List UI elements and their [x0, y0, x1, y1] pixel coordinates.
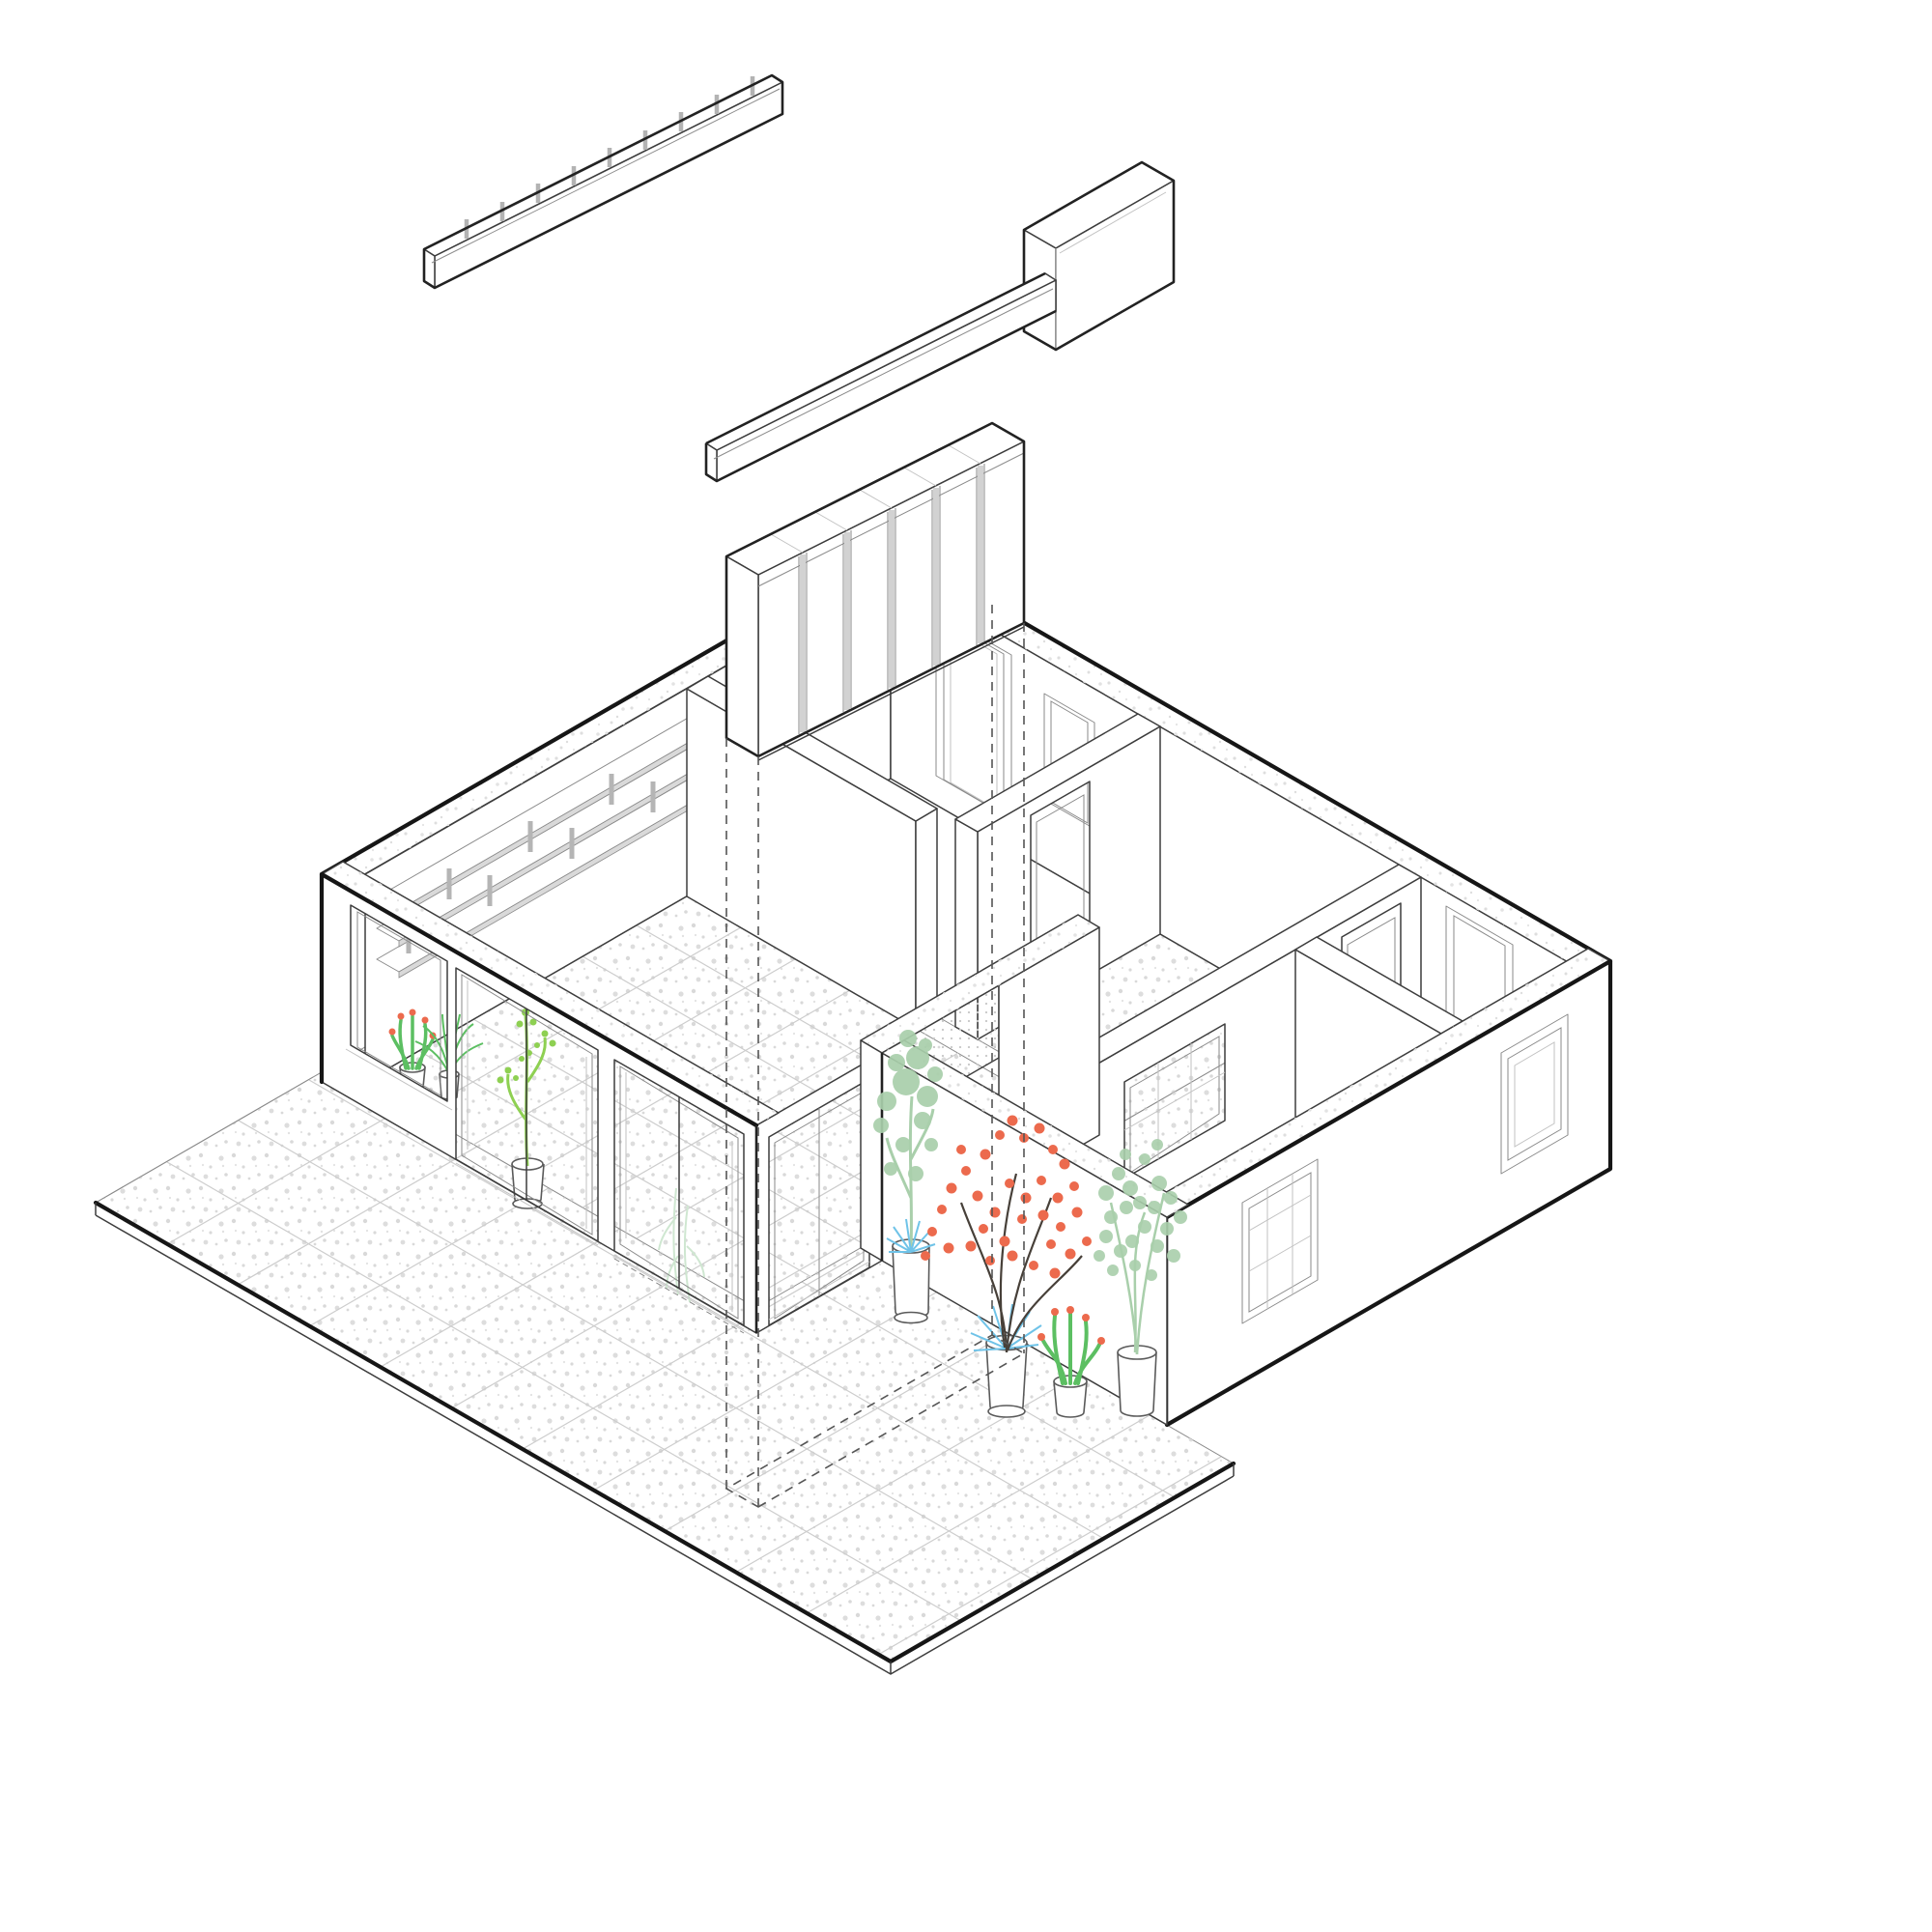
counter-cabinet-box: [1024, 162, 1174, 350]
exploded-axonometric-drawing: [0, 0, 1932, 1932]
exploded-counter-unit: [706, 162, 1174, 481]
bar-top-face: [706, 273, 1056, 450]
exploded-shelf-rail: [424, 75, 782, 288]
rail-inner-line: [432, 89, 780, 263]
wardrobe-left-cap: [726, 556, 758, 756]
tree2-pot: [1118, 1352, 1156, 1416]
drawing-canvas: [0, 0, 1932, 1932]
kitchen-wall-end-cap: [861, 1040, 882, 1261]
p1-end-face: [916, 809, 937, 1029]
rail-top-face: [424, 75, 782, 256]
berry-pot: [986, 1343, 1027, 1412]
